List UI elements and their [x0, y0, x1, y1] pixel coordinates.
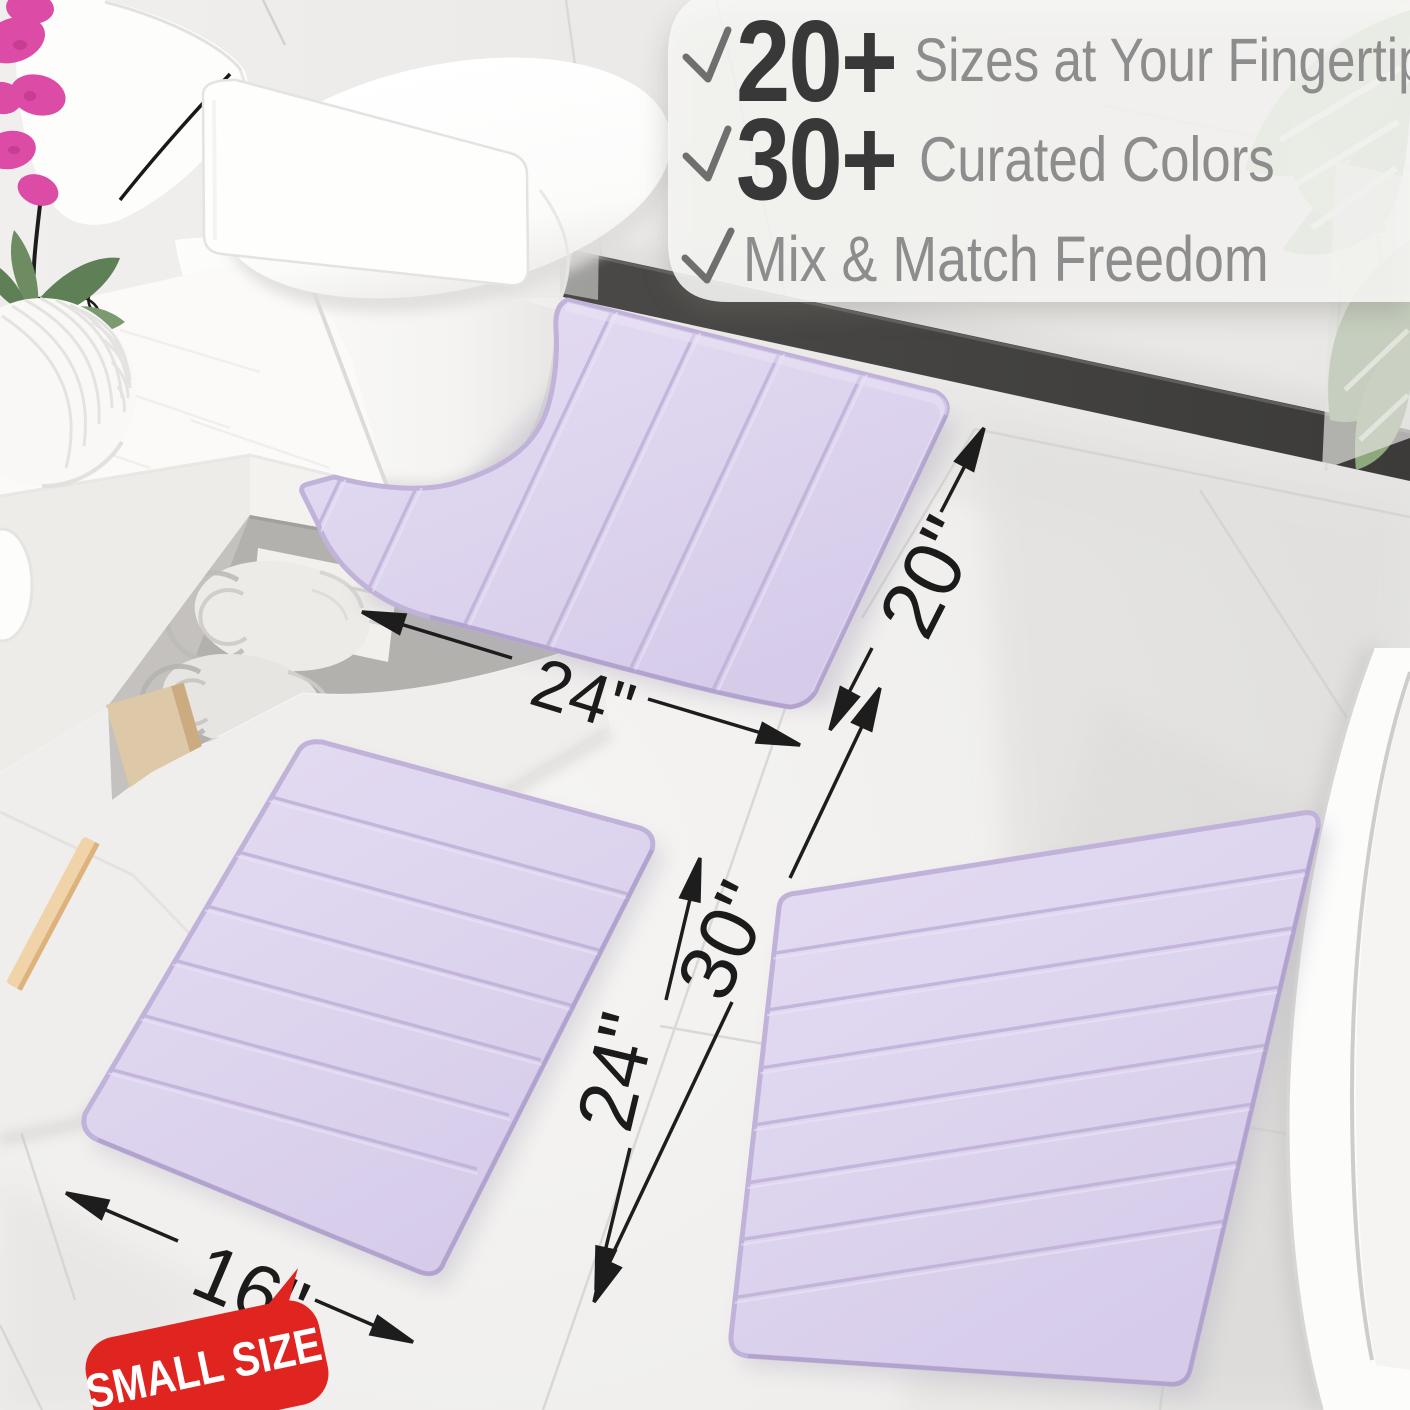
svg-text:Curated Colors: Curated Colors	[919, 125, 1275, 195]
svg-text:Sizes at Your Fingertips: Sizes at Your Fingertips	[914, 26, 1410, 94]
svg-text:Mix & Match Freedom: Mix & Match Freedom	[743, 223, 1269, 296]
svg-text:30+: 30+	[736, 94, 896, 224]
